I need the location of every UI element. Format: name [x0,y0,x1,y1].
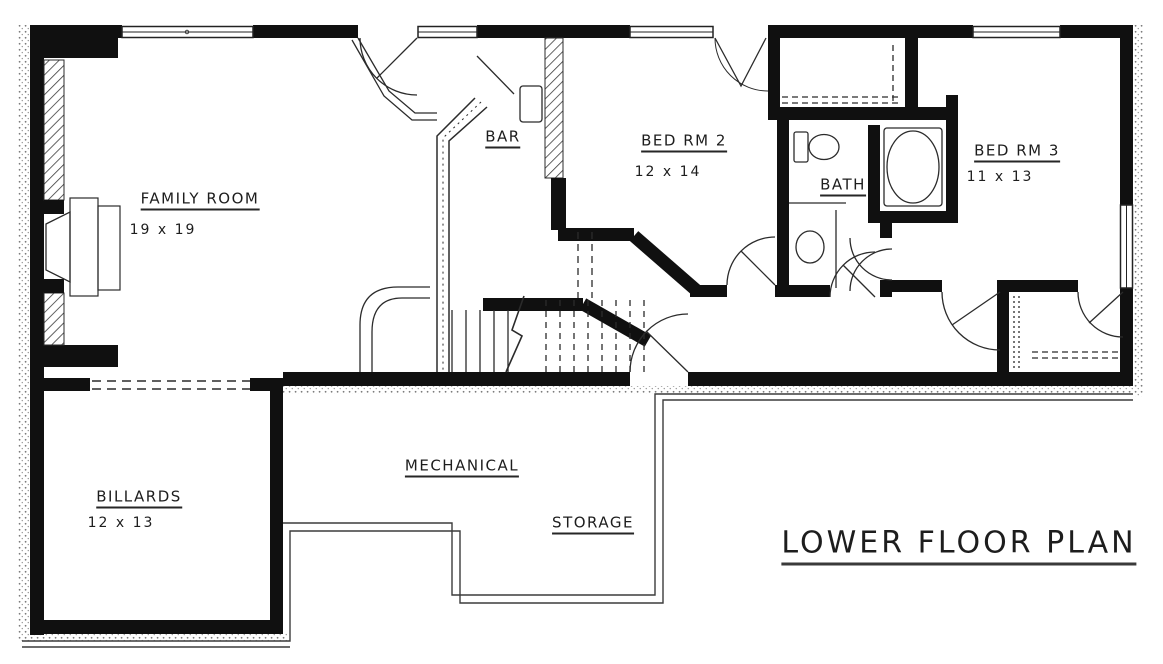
room-label-bed-rm-3: BED RM 3 [974,141,1060,160]
plan-title: LOWER FLOOR PLAN [781,526,1136,561]
closet-shelf-icon [1032,352,1118,358]
billiards-opening [92,381,250,389]
entry-nook [352,38,514,120]
room-dims-billards: 12 x 13 [88,515,155,531]
room-label-mechanical: MECHANICAL [405,456,519,475]
bathtub-icon [884,128,942,206]
door-swing-icon [360,38,417,95]
door-swing-icon [1078,292,1123,337]
interior-walls [483,38,1078,372]
room-label-billards: BILLARDS [96,487,182,506]
sink-icon [796,210,836,288]
toilet-icon [794,132,839,162]
bedrm3-closet [1014,292,1123,368]
room-label-storage: STORAGE [552,513,634,532]
door-swing-icon [715,38,768,91]
room-dims-bed-rm-3: 11 x 13 [967,169,1034,185]
room-label-bath: BATH [820,175,866,194]
fireplace-icon [44,38,120,367]
room-label-bed-rm-2: BED RM 2 [641,131,727,150]
fireplace [44,38,120,367]
room-dims-family-room: 19 x 19 [130,222,197,238]
bar-area [437,38,563,372]
room-label-bar: BAR [485,127,520,146]
room-dims-bed-rm-2: 12 x 14 [635,164,702,180]
bar-sink-icon [520,86,542,122]
room-label-family-room: FAMILY ROOM [141,189,260,208]
floor-plan-page: FAMILY ROOM 19 x 19 BAR BED RM 2 12 x 14… [0,0,1163,664]
closet-shelf-icon [782,45,900,105]
door-swing-icon [942,292,1000,350]
door-swing-icon [727,237,775,285]
door-swing-icon [830,252,875,297]
